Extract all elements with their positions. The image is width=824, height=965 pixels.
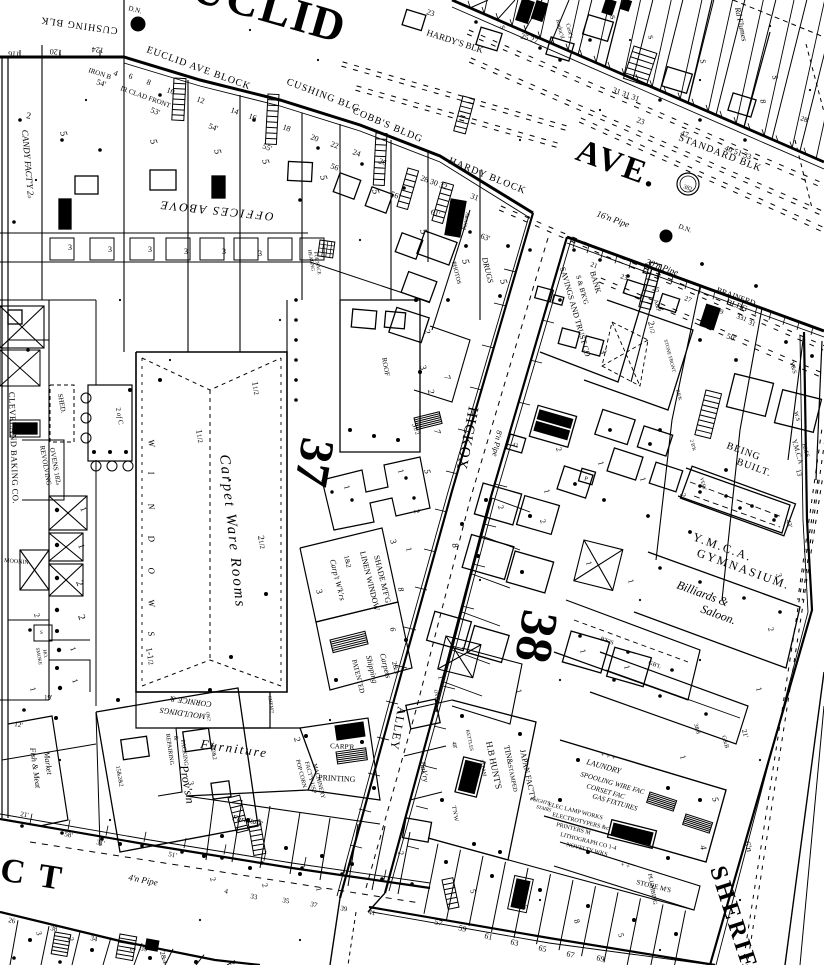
svg-text:3: 3	[184, 247, 188, 256]
svg-text:3: 3	[148, 245, 152, 254]
svg-text:38: 38	[503, 606, 568, 667]
svg-text:3: 3	[68, 243, 72, 252]
svg-text:19': 19'	[44, 694, 52, 702]
svg-text:51': 51'	[168, 850, 178, 860]
svg-text:3: 3	[258, 249, 262, 258]
svg-text:3: 3	[108, 245, 112, 254]
svg-text:S: S	[40, 631, 43, 636]
svg-text:31': 31'	[96, 838, 106, 848]
svg-text:37: 37	[284, 434, 345, 490]
svg-text:116: 116	[8, 49, 20, 59]
svg-text:58': 58'	[64, 830, 74, 840]
svg-text:124: 124	[91, 45, 104, 55]
svg-text:21': 21'	[20, 810, 30, 819]
svg-text:3: 3	[222, 247, 226, 256]
svg-text:12': 12'	[14, 720, 24, 729]
